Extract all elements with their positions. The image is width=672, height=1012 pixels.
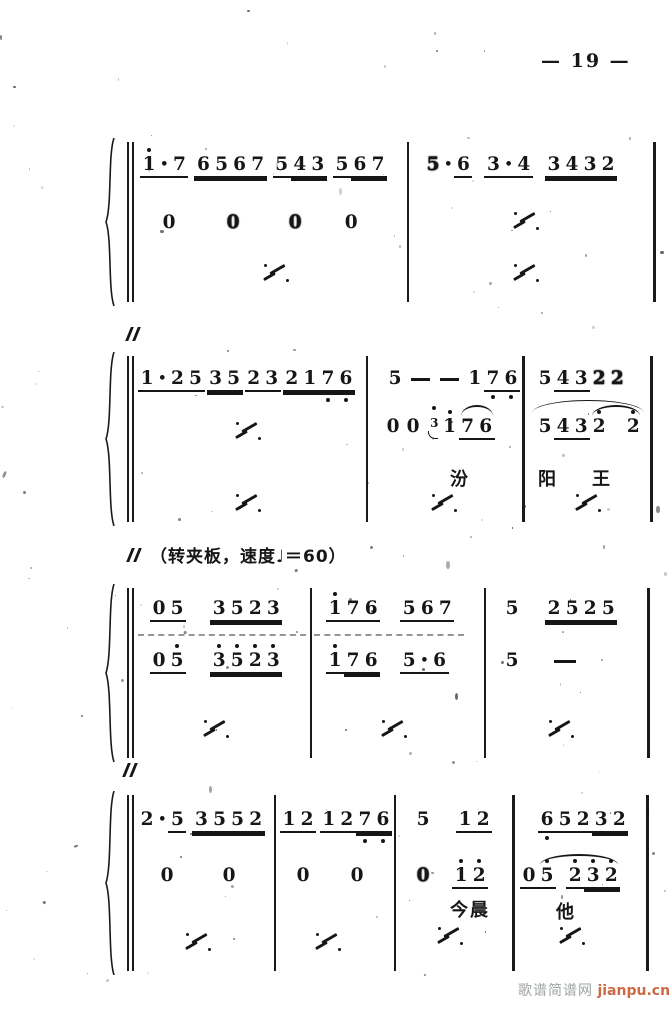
note-token: 5 [538, 865, 556, 889]
octave-dot-above [217, 644, 221, 648]
notes-row: 00 [278, 865, 392, 887]
noise-speck [1, 406, 4, 409]
note-token: 2 [338, 809, 356, 833]
noise-speck [342, 390, 343, 391]
note-glyph: 5 [566, 598, 579, 619]
octave-dot-below [491, 395, 495, 399]
noise-speck [484, 50, 485, 51]
section-marker [125, 548, 145, 564]
note-token: 3 [210, 650, 228, 674]
note-token: 5 [213, 154, 231, 178]
octave-dot-above [235, 644, 239, 648]
note-token: 7 [484, 368, 502, 392]
noise-speck [475, 761, 477, 763]
simile-stroke [263, 272, 276, 281]
note-glyph: 6 [421, 598, 434, 619]
noise-speck [183, 625, 186, 628]
note-token: 2 [168, 368, 186, 392]
note-glyph: 0 [227, 212, 240, 233]
system-2: 1•25352321765176003176汾5432254322阳王 [118, 356, 658, 522]
noise-speck [287, 42, 288, 45]
augmentation-dot: • [156, 809, 168, 831]
note-glyph: 1 [329, 650, 342, 671]
note-glyph: 2 [473, 865, 486, 886]
noise-speck [451, 421, 453, 423]
simile-dot [454, 509, 457, 512]
note-token: 1 [452, 865, 470, 889]
note-glyph: 5 [171, 650, 184, 671]
section-marker [124, 327, 144, 343]
noise-speck [294, 568, 297, 571]
note-glyph: 3 [267, 650, 280, 671]
note-token: 1 [140, 154, 158, 178]
noise-speck [383, 174, 384, 175]
note-glyph: 6 [197, 154, 210, 175]
note-glyph: 2 [285, 368, 298, 389]
barline [650, 356, 653, 522]
note-glyph: 0 [297, 865, 310, 886]
note-spacer [304, 212, 342, 213]
simile-dot [571, 735, 574, 738]
barline [127, 356, 129, 522]
simile-dot [258, 509, 261, 512]
note-token: 2 [590, 368, 608, 390]
noise-speck [43, 901, 47, 905]
noise-speck [550, 211, 551, 212]
rest-note: 0 [224, 212, 242, 234]
note-token: 5 [228, 598, 246, 622]
note-token: 1 [280, 809, 298, 833]
note-token: 2 [608, 368, 626, 390]
note-token: 5 [333, 154, 351, 178]
noise-speck [183, 630, 186, 633]
augmentation-dot: • [158, 154, 170, 178]
noise-speck [293, 349, 296, 352]
note-token: 1 [326, 598, 344, 622]
note-glyph: 1 [283, 809, 296, 830]
note-token: 2 [574, 809, 592, 833]
noise-speck [629, 137, 630, 140]
simile-dot [560, 927, 563, 930]
simile-repeat-mark [513, 212, 539, 230]
octave-dot-above [253, 644, 257, 648]
octave-dot-above [432, 406, 436, 410]
simile-stroke [548, 728, 561, 737]
octave-dot-below [545, 836, 549, 840]
note-glyph: 4 [566, 154, 579, 175]
note-glyph: • [158, 371, 166, 386]
note-spacer [186, 598, 210, 599]
note-glyph: 5 [213, 809, 226, 830]
note-token: 6 [454, 154, 472, 178]
note-glyph: 0 [153, 650, 166, 671]
noise-speck [339, 188, 342, 195]
note-glyph: 5 [215, 154, 228, 175]
simile-dot [204, 720, 207, 723]
noise-speck [276, 163, 278, 165]
note-token: 6 [194, 154, 212, 178]
barline [132, 795, 134, 971]
note-glyph: 2 [593, 416, 606, 437]
note-token: 5 [503, 598, 521, 620]
note-token: 2 [624, 416, 642, 438]
measure: 1•765675435670000 [136, 142, 406, 302]
noise-speck [472, 180, 474, 182]
note-token: 3 [192, 809, 210, 833]
note-glyph: 5 [389, 368, 402, 389]
note-spacer [472, 154, 484, 155]
noise-speck [115, 595, 116, 596]
noise-speck [273, 173, 274, 174]
notes-row: 52525 [489, 598, 645, 622]
simile-repeat-mark [437, 927, 463, 945]
simile-repeat-mark [235, 422, 261, 440]
note-spacer [242, 212, 286, 213]
note-token: 5 [273, 154, 291, 178]
note-glyph: 0 [163, 212, 176, 233]
simile-stroke [235, 502, 248, 511]
note-glyph: • [444, 157, 452, 172]
noise-speck [13, 86, 15, 88]
note-token: 3 [264, 650, 282, 674]
octave-dot-above [448, 410, 452, 414]
note-token: 2 [581, 598, 599, 622]
note-token: 4 [291, 154, 309, 178]
measure: 6523205232他 [516, 795, 644, 971]
simile-dot [536, 279, 539, 282]
note-glyph: 3 [547, 154, 560, 175]
octave-dot-above [147, 148, 151, 152]
note-token: 6 [362, 650, 380, 674]
noise-speck [376, 916, 378, 918]
note-glyph: 2 [611, 368, 624, 389]
note-glyph: 5 [602, 598, 615, 619]
measure: 525255 [489, 588, 645, 758]
noise-speck [178, 518, 181, 521]
note-glyph: 2 [249, 650, 262, 671]
simile-dot [338, 948, 341, 951]
measure: 2•5355200 [136, 795, 272, 971]
barline [484, 588, 486, 758]
system-brace [104, 138, 116, 306]
rest-note: 0 [348, 865, 366, 887]
barline [274, 795, 276, 971]
note-glyph: 2 [569, 865, 582, 886]
note-token: 1 [326, 650, 344, 674]
notes-row: 1•76567543567 [136, 154, 406, 178]
note-glyph: 1 [443, 416, 456, 437]
barline [127, 795, 129, 971]
notes-row: 1765•6 [314, 650, 482, 674]
rest-note: 0 [520, 865, 538, 889]
note-glyph: 7 [358, 809, 371, 830]
simile-repeat-mark [513, 264, 539, 282]
simile-dot [536, 227, 539, 230]
note-token: 6 [418, 598, 436, 622]
note-token: 3 [309, 154, 327, 178]
lyric-syllable: 王 [592, 470, 612, 490]
rest-note: 0 [404, 416, 422, 438]
noise-speck [209, 786, 212, 793]
octave-dot-above [477, 859, 481, 863]
note-glyph: 2 [477, 809, 490, 830]
noise-speck [652, 852, 655, 855]
note-glyph: 7 [372, 154, 385, 175]
note-token: 2 [245, 368, 263, 392]
notes-row: 54322 [526, 368, 650, 392]
noise-speck [664, 572, 667, 575]
system-1: 1•7656754356700005•63•43432 [118, 142, 658, 302]
note-token: 5 [599, 598, 617, 622]
measure: 053523053523 [136, 588, 308, 758]
note-glyph: 0 [345, 212, 358, 233]
simile-stroke [431, 502, 444, 511]
rest-note: 0 [294, 865, 312, 887]
simile-stroke [235, 430, 248, 439]
note-glyph: 6 [233, 154, 246, 175]
augmentation-dot: • [442, 154, 454, 176]
noise-speck [6, 910, 7, 911]
simile-dot [576, 494, 579, 497]
system-3: 0535230535231765671765•6525255 [118, 588, 658, 758]
noise-speck [35, 383, 37, 385]
note-spacer [404, 368, 406, 369]
note-glyph: 3 [487, 154, 500, 175]
note-token: 5 [229, 809, 247, 833]
barline [647, 588, 650, 758]
simile-repeat-mark [575, 494, 601, 512]
note-token: 1 [456, 809, 474, 833]
noise-speck [13, 125, 15, 127]
note-glyph: • [505, 157, 513, 172]
simile-dot [432, 494, 435, 497]
noise-speck [436, 50, 438, 52]
note-spacer [176, 865, 220, 866]
barline [366, 356, 368, 522]
note-glyph: 2 [301, 809, 314, 830]
simile-dot [382, 720, 385, 723]
note-token: 5 [186, 368, 204, 392]
note-glyph: 6 [541, 809, 554, 830]
simile-repeat-mark [559, 927, 585, 945]
barline [132, 588, 134, 758]
note-token: 5 [400, 650, 418, 674]
note-glyph: 6 [377, 809, 390, 830]
notes-row: 5•63•43432 [410, 154, 653, 178]
octave-dot-above [333, 644, 337, 648]
note-token: 5 [168, 650, 186, 674]
simile-dot [258, 437, 261, 440]
note-glyph: 7 [251, 154, 264, 175]
noise-speck [67, 627, 68, 628]
note-glyph: 6 [479, 416, 492, 437]
note-token: 6 [337, 368, 355, 392]
notes-row: 512 [398, 809, 510, 833]
note-glyph: 5 [227, 368, 240, 389]
octave-dot-below [344, 398, 348, 402]
note-token: 5 [556, 809, 574, 833]
note-glyph: 3 [595, 809, 608, 830]
noise-speck [592, 326, 595, 329]
simile-dot [404, 735, 407, 738]
note-token: 3 [210, 598, 228, 622]
note-glyph: 3 [575, 368, 588, 389]
note-token: 4 [554, 416, 572, 440]
noise-speck [29, 168, 30, 170]
note-token: 5 [168, 809, 186, 833]
note-spacer [178, 212, 224, 213]
note-token: 6 [374, 809, 392, 833]
note-glyph: 7 [486, 368, 499, 389]
barline [127, 142, 129, 302]
simile-dot [264, 264, 267, 267]
noise-speck [121, 679, 123, 681]
section-marker [121, 763, 141, 779]
note-token: 1 [301, 368, 319, 392]
note-glyph: 4 [557, 368, 570, 389]
noise-speck [33, 958, 35, 960]
simile-dot [186, 933, 189, 936]
barline [646, 795, 649, 971]
noise-speck [0, 35, 2, 40]
noise-speck [147, 972, 149, 974]
note-token: 7 [436, 598, 454, 622]
note-glyph: 2 [249, 598, 262, 619]
barline [127, 588, 129, 758]
measure: 1•2535232176 [136, 356, 364, 522]
noise-speck [585, 254, 587, 256]
note-token: 7 [344, 598, 362, 622]
noise-speck [148, 169, 150, 171]
note-token: 5 [225, 368, 243, 392]
note-glyph: 1 [329, 598, 342, 619]
note-token: 2 [599, 154, 617, 178]
noise-speck [384, 65, 386, 67]
note-token: 3 [572, 416, 590, 440]
lyric-syllable: 今晨 [450, 901, 490, 921]
octave-dot-above [175, 644, 179, 648]
noise-speck [30, 567, 32, 569]
rest-note: 0 [414, 865, 432, 887]
note-glyph: 2 [584, 598, 597, 619]
noise-speck [87, 973, 88, 974]
note-token: 2 [246, 650, 264, 674]
note-glyph: 7 [347, 650, 360, 671]
note-glyph: 3 [587, 865, 600, 886]
simile-stroke [381, 728, 394, 737]
notes-row: 5 [489, 650, 645, 672]
note-glyph: 3 [209, 368, 222, 389]
note-token: 5 [386, 368, 404, 390]
note-glyph: 5 [506, 598, 519, 619]
noise-speck [46, 871, 48, 873]
noise-speck [118, 78, 119, 80]
note-glyph: 2 [249, 809, 262, 830]
note-token: 2 [283, 368, 301, 392]
noise-speck [580, 692, 581, 693]
note-glyph: 0 [417, 865, 430, 886]
note-token: 3 [263, 368, 281, 392]
octave-dot-above [333, 592, 337, 596]
measure: 1765671765•6 [314, 588, 482, 758]
noise-speck [603, 545, 605, 550]
note-glyph: 0 [407, 416, 420, 437]
simile-dot [286, 279, 289, 282]
note-glyph: 5 [171, 598, 184, 619]
note-glyph: 7 [173, 154, 186, 175]
barline [132, 142, 134, 302]
note-glyph: 1 [143, 154, 156, 175]
note-token: 2 [247, 809, 265, 833]
note-glyph: 1 [322, 809, 335, 830]
note-token: 5 [563, 598, 581, 622]
note-token: 7 [344, 650, 362, 674]
note-glyph: 5 [171, 809, 184, 830]
duration-dash [440, 378, 459, 381]
note-glyph: • [420, 653, 428, 668]
noise-speck [151, 135, 152, 136]
note-token: 3 [484, 154, 502, 178]
noise-speck [140, 604, 142, 606]
note-glyph: 3 [430, 416, 438, 430]
simile-stroke [513, 220, 526, 229]
noise-speck [23, 491, 26, 494]
noise-speck [452, 761, 455, 764]
marker-stroke [132, 327, 141, 341]
noise-speck [498, 307, 499, 308]
note-token: 7 [170, 154, 188, 178]
note-glyph: 3 [584, 154, 597, 175]
noise-speck [41, 185, 44, 188]
simile-stroke [203, 728, 216, 737]
barline [310, 588, 312, 758]
note-glyph: 5 [541, 865, 554, 886]
octave-dot-below [381, 839, 385, 843]
measure: 5432254322阳王 [526, 356, 650, 522]
measure: 5176003176汾 [370, 356, 520, 522]
note-token: 5 [168, 598, 186, 622]
note-token: 1 [466, 368, 484, 390]
note-glyph: 1 [468, 368, 481, 389]
note-glyph: 2 [141, 809, 154, 830]
note-glyph: 2 [602, 154, 615, 175]
note-glyph: 3 [195, 809, 208, 830]
simile-dot [236, 422, 239, 425]
note-glyph: 6 [365, 598, 378, 619]
marker-stroke [133, 548, 142, 562]
simile-dot [582, 942, 585, 945]
watermark: 歌谱简谱网 jianpu.cn [518, 982, 670, 1000]
note-token: 6 [351, 154, 369, 178]
system-4: 2•535520012127600512012今晨6523205232他 [118, 795, 658, 971]
rest-note: 0 [342, 212, 360, 234]
octave-dot-below [509, 395, 513, 399]
noise-speck [409, 900, 410, 901]
notes-row: 053523 [136, 598, 308, 622]
page-number: — 19 — [541, 50, 631, 72]
noise-speck [422, 668, 425, 671]
simile-dot [514, 212, 517, 215]
note-token: 5 [228, 650, 246, 674]
note-token: 6 [431, 650, 449, 674]
note-spacer [521, 650, 549, 651]
note-glyph: 1 [303, 368, 316, 389]
notes-row: 003176 [370, 416, 520, 440]
rest-note: 0 [150, 598, 168, 622]
noise-speck [512, 527, 514, 529]
simile-dot [514, 264, 517, 267]
simile-repeat-mark [381, 720, 407, 738]
